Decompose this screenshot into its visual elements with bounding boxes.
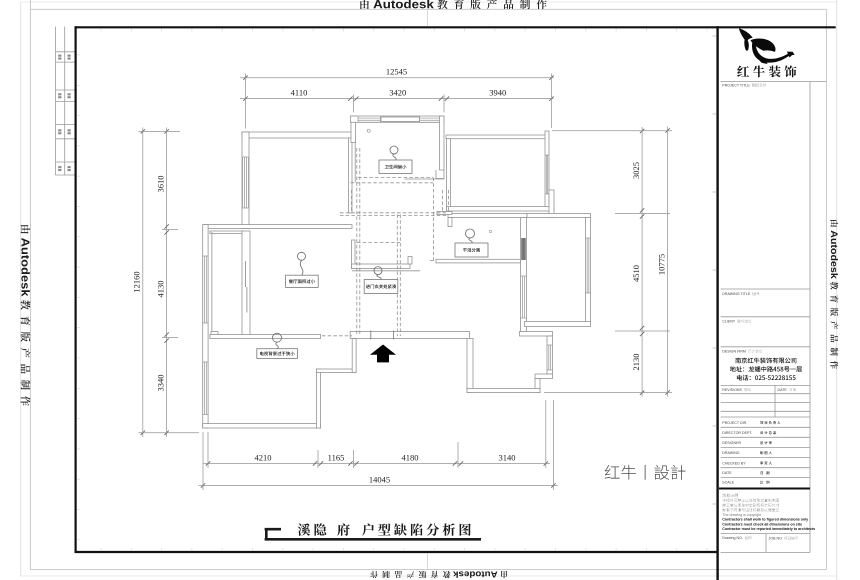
svg-text:1165: 1165 — [328, 452, 345, 462]
svg-text:DRAWING: DRAWING — [722, 451, 739, 455]
svg-text:CLIENT: CLIENT — [722, 320, 736, 324]
svg-text:Contractor must be reported im: Contractor must be reported immediately … — [722, 527, 815, 531]
svg-text:14045: 14045 — [369, 474, 390, 484]
svg-text:4130: 4130 — [155, 281, 165, 298]
svg-text:12160: 12160 — [132, 271, 142, 292]
svg-text:PROJECT DIR.: PROJECT DIR. — [722, 421, 747, 425]
svg-text:SCALE: SCALE — [722, 481, 734, 485]
svg-text:3140: 3140 — [499, 452, 516, 462]
svg-text:3025: 3025 — [631, 162, 641, 179]
svg-text:JOB NO: JOB NO — [769, 537, 783, 541]
svg-text:DATE: DATE — [722, 471, 732, 475]
svg-text:4210: 4210 — [255, 452, 272, 462]
svg-text:Contractors must check all dim: Contractors must check all dimensions on… — [722, 522, 802, 526]
svg-text:DESIGN FIRM: DESIGN FIRM — [722, 350, 746, 354]
svg-text:3610: 3610 — [155, 176, 165, 193]
svg-text:4180: 4180 — [402, 452, 419, 462]
svg-text:Drawing NO.: Drawing NO. — [722, 536, 743, 540]
svg-text:PROJECT TITLE: PROJECT TITLE — [722, 83, 750, 87]
svg-text:10775: 10775 — [656, 254, 666, 275]
svg-text:The drawing is copyright: The drawing is copyright — [722, 513, 761, 517]
svg-text:3340: 3340 — [155, 375, 165, 392]
svg-text:4510: 4510 — [631, 265, 641, 282]
svg-text:DESIGNER: DESIGNER — [722, 441, 741, 445]
svg-text:2130: 2130 — [631, 354, 641, 371]
svg-text:Contractors shall work to figu: Contractors shall work to figured dimens… — [722, 518, 808, 522]
svg-text:DIRECTOR DEPT.: DIRECTOR DEPT. — [722, 431, 752, 435]
svg-text:12545: 12545 — [386, 66, 407, 76]
svg-text:3420: 3420 — [389, 87, 406, 97]
svg-text:DRAWING TITLE: DRAWING TITLE — [722, 292, 751, 296]
svg-text:REVISIONS: REVISIONS — [722, 388, 742, 392]
svg-text:CHECKED BY: CHECKED BY — [722, 461, 746, 465]
svg-text:3940: 3940 — [489, 87, 506, 97]
svg-text:DATE: DATE — [778, 388, 788, 392]
svg-text:4110: 4110 — [291, 87, 308, 97]
